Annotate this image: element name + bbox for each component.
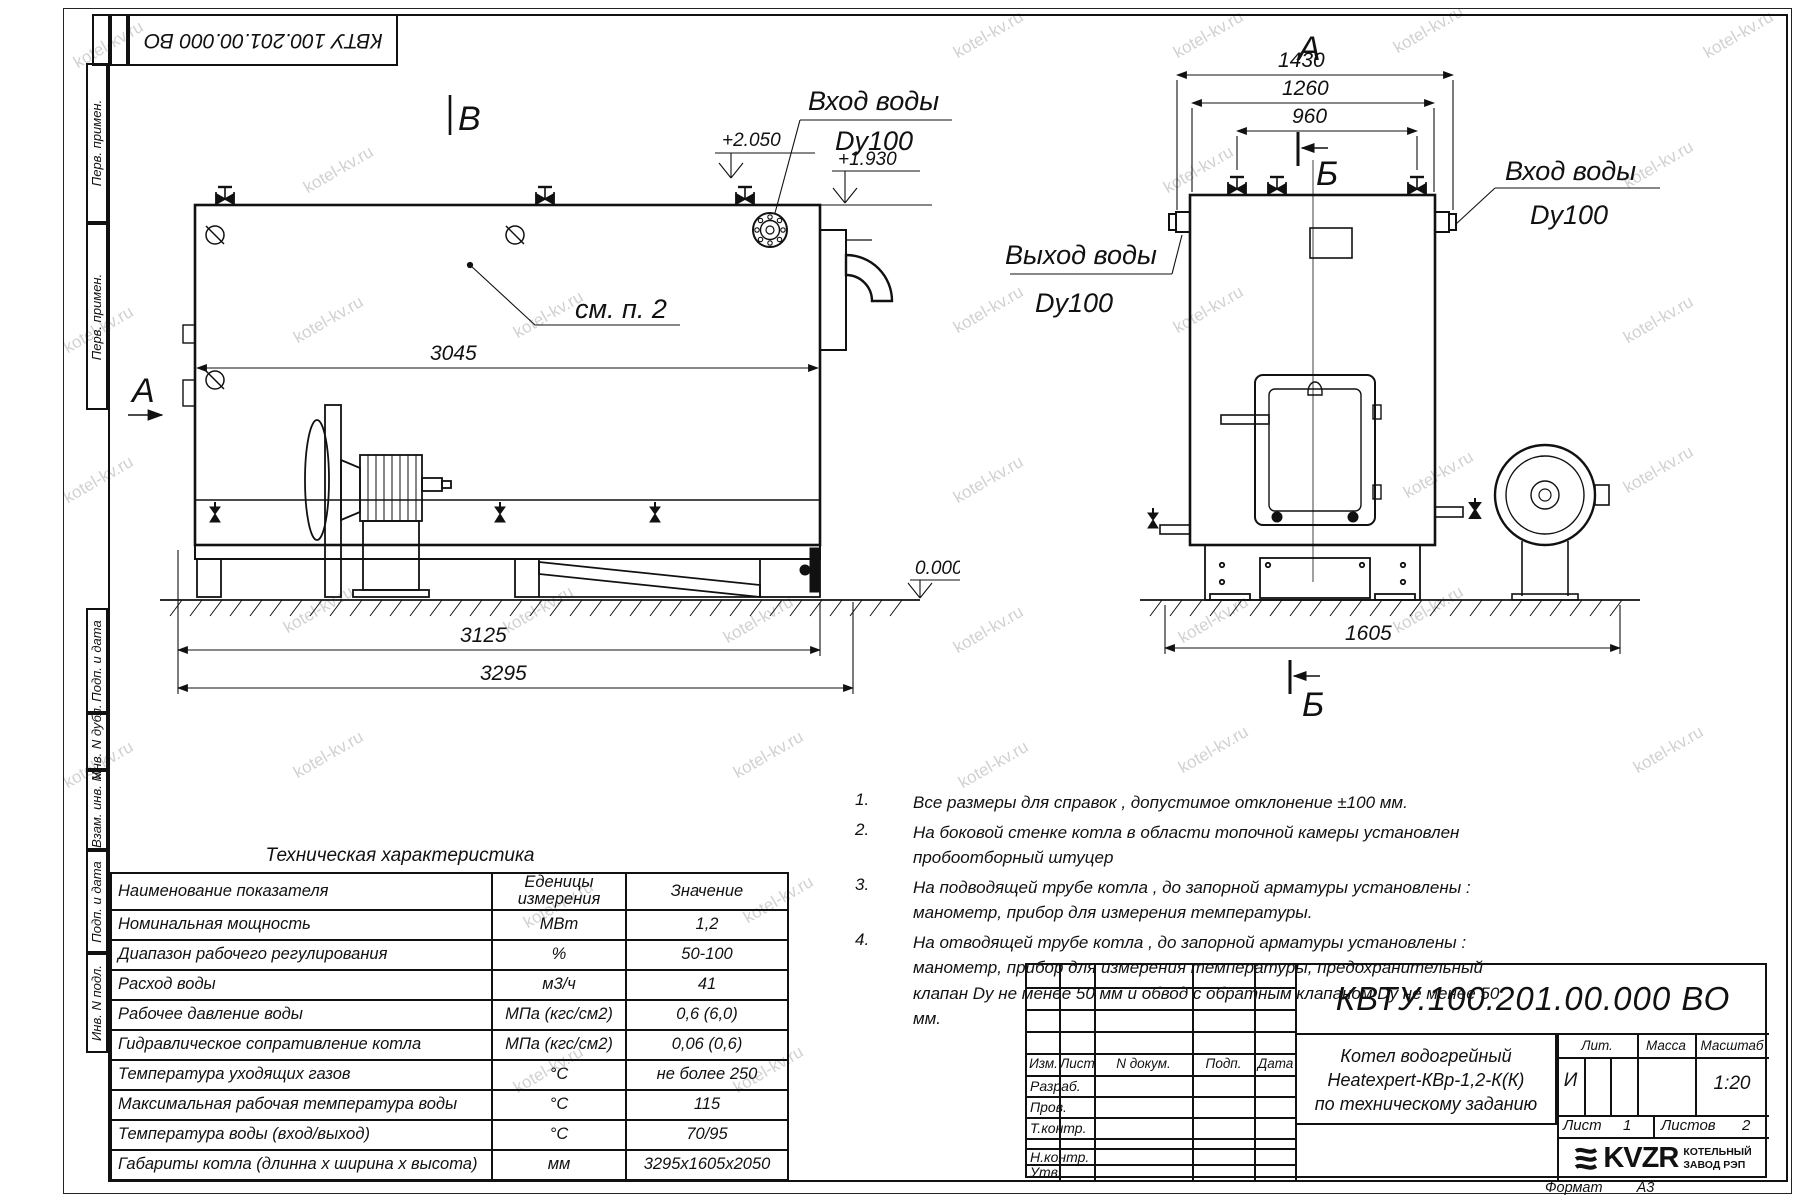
spec-value: 1,2 xyxy=(626,910,788,940)
tb-col-izm: Изм. xyxy=(1028,1056,1059,1071)
tb-row-nkontr: Н.контр. xyxy=(1030,1149,1089,1165)
spec-table: Наименование показателя Еденицы измерени… xyxy=(110,872,789,1181)
boiler-side-view: 3045 3125 3295 В А см. п. 2 +2.050 +1.93… xyxy=(120,80,960,720)
spec-unit: МВт xyxy=(492,910,626,940)
note-number: 4. xyxy=(855,930,913,1032)
product-name-line1: Котел водогрейный xyxy=(1340,1044,1511,1068)
dim-3045: 3045 xyxy=(430,342,477,365)
spec-col-name: Наименование показателя xyxy=(111,873,492,910)
spec-table-title: Техническая характеристика xyxy=(250,845,550,867)
water-outlet-dn: Dy100 xyxy=(1035,288,1113,318)
valve-icon xyxy=(1228,177,1246,196)
format-value: А3 xyxy=(1637,1180,1655,1196)
table-row: Диапазон рабочего регулирования%50-100 xyxy=(111,940,788,970)
tb-row-tkontr: Т.контр. xyxy=(1030,1120,1086,1136)
list-item: 3.На подводящей трубе котла , до запорно… xyxy=(855,875,1517,926)
rear-fitting-icon xyxy=(800,548,820,592)
tb-row-utv: Утв. xyxy=(1030,1164,1062,1180)
note-text: На боковой стенке котла в области топочн… xyxy=(913,820,1517,871)
margin-label: Инв. N дубл. xyxy=(89,704,107,779)
spec-name: Максимальная рабочая температура воды xyxy=(111,1090,492,1120)
water-outlet-label: Выход воды xyxy=(1005,240,1157,270)
tb-col-data: Дата xyxy=(1255,1056,1296,1071)
margin-box-podp-data-1: Подп. и дата xyxy=(86,608,108,713)
note-number: 1. xyxy=(855,790,913,816)
valve-icon xyxy=(216,187,234,206)
spec-value: 0,6 (6,0) xyxy=(626,1000,788,1030)
margin-box-inv-podl: Инв. N подл. xyxy=(86,953,108,1053)
margin-label: Подп. и дата xyxy=(89,620,107,701)
spec-name: Диапазон рабочего регулирования xyxy=(111,940,492,970)
table-row: Температура уходящих газов°Сне более 250 xyxy=(111,1060,788,1090)
section-b-bottom-label: Б xyxy=(1302,686,1324,720)
spec-unit: МПа (кгс/см2) xyxy=(492,1000,626,1030)
base-frame xyxy=(1205,545,1420,600)
spec-col-units: Еденицы измерения xyxy=(492,873,626,910)
spec-name: Расход воды xyxy=(111,970,492,1000)
stamp-cell xyxy=(110,14,128,66)
callout-see-note-2: см. п. 2 xyxy=(575,294,667,324)
kvzr-logo-icon xyxy=(1574,1146,1598,1172)
tb-sheet-value: 1 xyxy=(1623,1117,1631,1134)
spec-unit: % xyxy=(492,940,626,970)
table-row: Гидравлическое сопративление котлаМПа (к… xyxy=(111,1030,788,1060)
burner-motor-icon xyxy=(305,405,451,597)
dim-1430: 1430 xyxy=(1278,49,1325,72)
product-name-line2: Heatexpert-КВр-1,2-К(К) xyxy=(1328,1068,1525,1092)
valve-icon xyxy=(536,187,554,206)
spec-unit: °С xyxy=(492,1120,626,1150)
ground-line xyxy=(160,600,920,616)
section-b-top-label: Б xyxy=(1316,155,1338,193)
table-row: Габариты котла (длинна х ширина х высота… xyxy=(111,1150,788,1180)
tb-col-ndokum: N докум. xyxy=(1095,1056,1192,1071)
note-number: 3. xyxy=(855,875,913,926)
dim-3125: 3125 xyxy=(460,624,507,647)
tb-sheets-label: Листов xyxy=(1661,1117,1716,1134)
margin-box-perv-primen-1: Перв. примен. xyxy=(86,63,108,223)
format-label: Формат А3 xyxy=(1545,1180,1654,1196)
view-a-arrow-label: А xyxy=(130,372,155,410)
tb-sheets-value: 2 xyxy=(1742,1117,1750,1134)
tb-lit-value: И xyxy=(1557,1070,1584,1092)
inlet-flange-icon xyxy=(753,213,787,247)
tb-scale-value: 1:20 xyxy=(1695,1073,1769,1095)
org-name-line2: ЗАВОД РЭП xyxy=(1683,1159,1751,1171)
table-row: Номинальная мощностьМВт1,2 xyxy=(111,910,788,940)
drawing-sheet: kotel-kv.ru kotel-kv.ru kotel-kv.ru kote… xyxy=(0,0,1800,1200)
drain-valve-icon xyxy=(210,502,220,522)
valve-icon xyxy=(1408,177,1426,196)
spec-name: Рабочее давление воды xyxy=(111,1000,492,1030)
margin-box-perv-primen-2: Перв. примен. xyxy=(86,223,108,410)
spec-unit: мм xyxy=(492,1150,626,1180)
org-name-line1: КОТЕЛЬНЫЙ xyxy=(1683,1146,1751,1158)
drain-valve-icon xyxy=(495,502,505,522)
spec-name: Гидравлическое сопративление котла xyxy=(111,1030,492,1060)
drain-valve-icon xyxy=(1148,508,1190,534)
list-item: 2.На боковой стенке котла в области топо… xyxy=(855,820,1517,871)
dim-3295: 3295 xyxy=(480,662,527,685)
stamp-code-text: КВТУ 100.201.00.000 ВО xyxy=(144,28,383,52)
furnace-door-icon xyxy=(1221,375,1381,525)
spec-header-row: Наименование показателя Еденицы измерени… xyxy=(111,873,788,910)
dim-1260: 1260 xyxy=(1282,77,1329,100)
spec-name: Габариты котла (длинна х ширина х высота… xyxy=(111,1150,492,1180)
boiler-front-view: А Б Б 1430 1260 960 1605 Выход воды Dy10… xyxy=(850,20,1670,720)
tb-sheet-label: Лист xyxy=(1563,1117,1602,1134)
valve-icon xyxy=(736,187,754,206)
tb-row-prov: Пров. xyxy=(1030,1099,1067,1115)
spec-name: Температура уходящих газов xyxy=(111,1060,492,1090)
note-number: 2. xyxy=(855,820,913,871)
spec-unit: °С xyxy=(492,1090,626,1120)
note-text: На подводящей трубе котла , до запорной … xyxy=(913,875,1517,926)
blower-fan-icon xyxy=(1435,445,1609,600)
ground-line xyxy=(1140,600,1640,616)
margin-label: Инв. N подл. xyxy=(89,965,107,1041)
tb-row-razrab: Разраб. xyxy=(1030,1078,1081,1094)
view-b-label: В xyxy=(458,100,481,138)
spec-value: 115 xyxy=(626,1090,788,1120)
format-word: Формат xyxy=(1545,1180,1603,1196)
margin-box-vzam-inv: Взам. инв. N xyxy=(86,770,108,850)
margin-label: Перв. примен. xyxy=(89,273,107,359)
table-row: Максимальная рабочая температура воды°С1… xyxy=(111,1090,788,1120)
stamp-cell xyxy=(92,14,110,66)
tb-col-list: Лист xyxy=(1060,1056,1094,1071)
margin-box-podp-data-2: Подп. и дата xyxy=(86,850,108,953)
tb-mass-label: Масса xyxy=(1637,1038,1695,1053)
margin-label: Подп. и дата xyxy=(89,861,107,942)
drain-valve-icon xyxy=(650,502,660,522)
margin-label: Перв. примен. xyxy=(89,100,107,186)
logo-text: KVZR xyxy=(1603,1142,1678,1175)
tb-scale-label: Масштаб xyxy=(1695,1038,1769,1053)
dim-1605: 1605 xyxy=(1345,622,1392,645)
water-inlet-dn-front: Dy100 xyxy=(1530,200,1608,230)
table-row: Рабочее давление водыМПа (кгс/см2)0,6 (6… xyxy=(111,1000,788,1030)
company-logo: KVZR КОТЕЛЬНЫЙ ЗАВОД РЭП xyxy=(1559,1139,1767,1178)
dim-960: 960 xyxy=(1292,105,1327,128)
spec-value: 3295х1605х2050 xyxy=(626,1150,788,1180)
spec-unit: °С xyxy=(492,1060,626,1090)
spec-value: 41 xyxy=(626,970,788,1000)
list-item: 1.Все размеры для справок , допустимое о… xyxy=(855,790,1517,816)
document-number: КВТУ.100.201.00.000 ВО xyxy=(1297,965,1769,1035)
spec-unit: м3/ч xyxy=(492,970,626,1000)
tb-lit-label: Лит. xyxy=(1557,1038,1637,1053)
product-name-line3: по техническому заданию xyxy=(1315,1092,1537,1116)
table-row: Расход водым3/ч41 xyxy=(111,970,788,1000)
spec-value: 70/95 xyxy=(626,1120,788,1150)
margin-label: Взам. инв. N xyxy=(89,772,107,848)
water-inlet-label-front: Вход воды xyxy=(1505,156,1636,186)
spec-value: 50-100 xyxy=(626,940,788,970)
document-code-stamp: КВТУ 100.201.00.000 ВО xyxy=(128,14,398,66)
note-text: Все размеры для справок , допустимое отк… xyxy=(913,790,1408,816)
title-block: Изм. Лист N докум. Подп. Дата Разраб. Пр… xyxy=(1025,963,1767,1178)
table-row: Температура воды (вход/выход)°С70/95 xyxy=(111,1120,788,1150)
valve-icon xyxy=(1268,177,1286,196)
spec-value: 0,06 (0,6) xyxy=(626,1030,788,1060)
spec-value: не более 250 xyxy=(626,1060,788,1090)
spec-col-value: Значение xyxy=(626,873,788,910)
spec-unit: МПа (кгс/см2) xyxy=(492,1030,626,1060)
product-name: Котел водогрейный Heatexpert-КВр-1,2-К(К… xyxy=(1297,1035,1557,1125)
spec-name: Температура воды (вход/выход) xyxy=(111,1120,492,1150)
margin-box-inv-dubl: Инв. N дубл. xyxy=(86,713,108,770)
elevation-2050: +2.050 xyxy=(722,130,781,151)
tb-col-podp: Подп. xyxy=(1193,1056,1254,1071)
spec-name: Номинальная мощность xyxy=(111,910,492,940)
